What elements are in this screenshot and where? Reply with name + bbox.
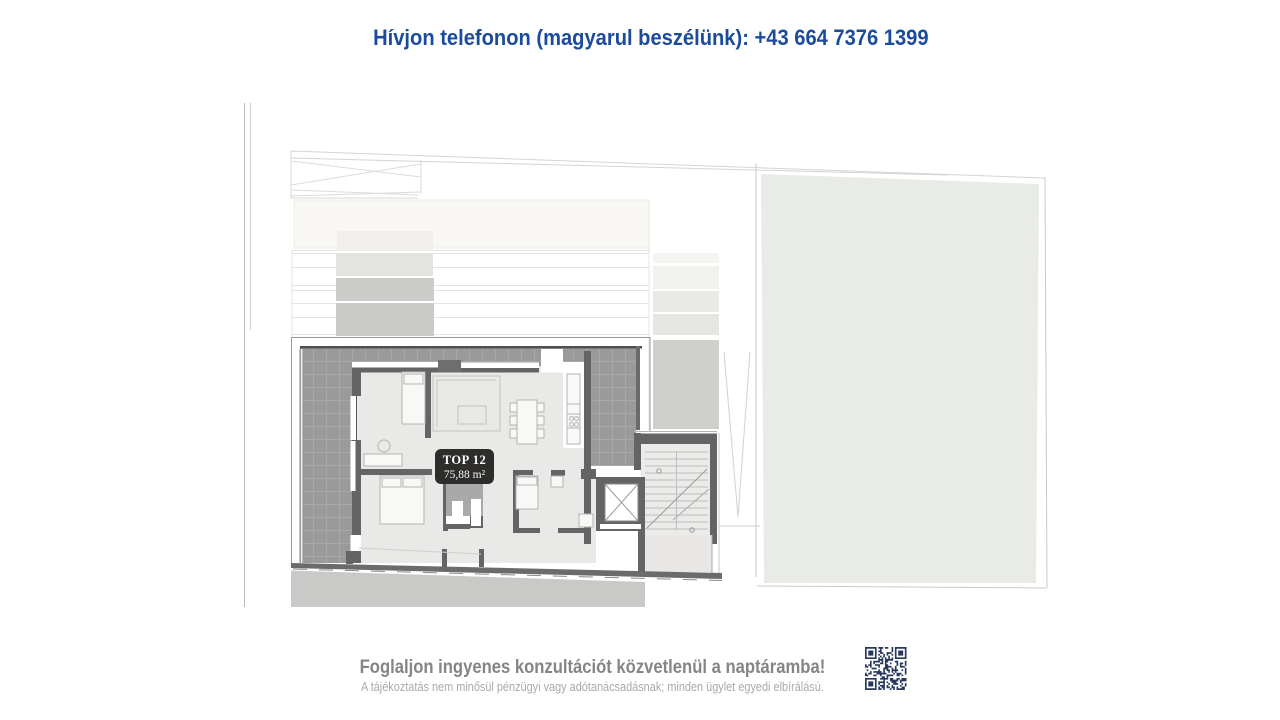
svg-text:75,88 m²: 75,88 m²	[444, 469, 486, 481]
svg-text:TOP 12: TOP 12	[443, 453, 486, 467]
